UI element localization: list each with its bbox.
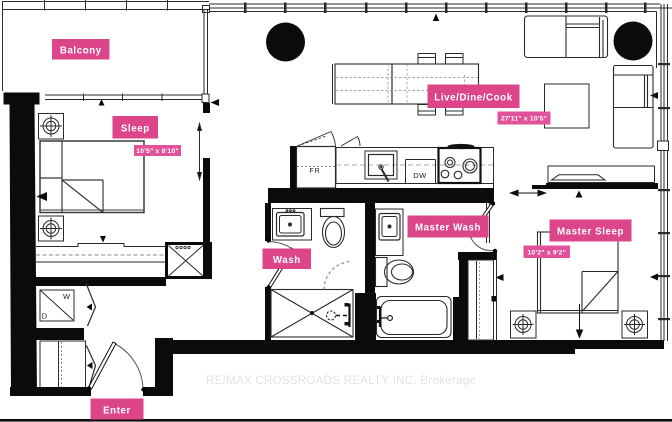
svg-text:Sleep: Sleep xyxy=(121,123,150,134)
svg-text:Master Wash: Master Wash xyxy=(415,223,481,234)
svg-text:RE/MAX CROSSROADS REALTY INC.: RE/MAX CROSSROADS REALTY INC. Brokerage xyxy=(206,375,476,387)
svg-text:Enter: Enter xyxy=(103,405,131,416)
svg-text:Live/Dine/Cook: Live/Dine/Cook xyxy=(434,92,512,103)
svg-text:Wash: Wash xyxy=(273,255,301,266)
svg-text:Master Sleep: Master Sleep xyxy=(557,227,624,238)
svg-text:FR: FR xyxy=(309,168,320,175)
svg-text:10'5" x 8'10": 10'5" x 8'10" xyxy=(136,148,179,155)
svg-text:Balcony: Balcony xyxy=(60,45,102,56)
svg-text:W: W xyxy=(63,292,71,301)
svg-text:D: D xyxy=(42,312,48,321)
svg-text:27'11" x 10'5": 27'11" x 10'5" xyxy=(501,116,547,123)
svg-text:DW: DW xyxy=(413,171,427,180)
svg-text:10'2" x 9'2": 10'2" x 9'2" xyxy=(528,249,567,256)
